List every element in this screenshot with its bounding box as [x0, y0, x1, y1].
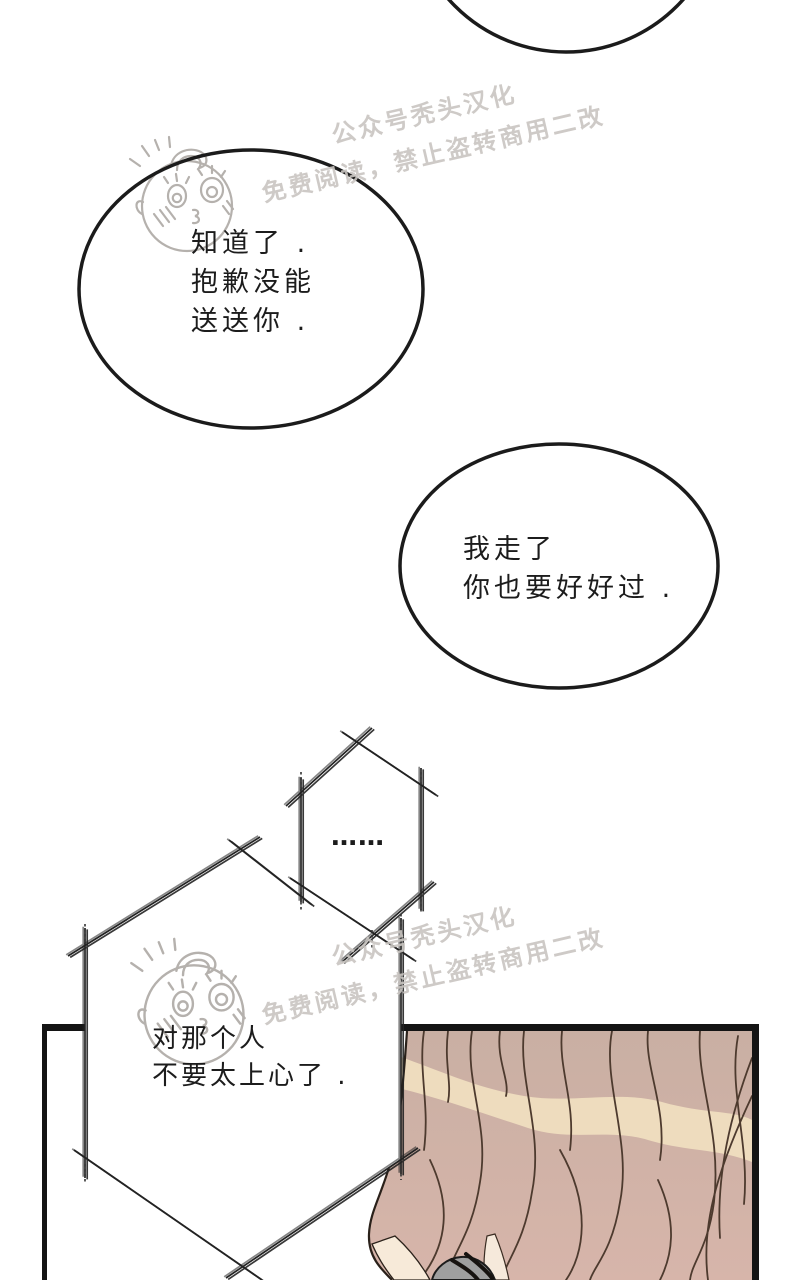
speech-line: 你也要好好过 .: [463, 569, 674, 608]
speech-bubble-1-text: 知道了 .抱歉没能送送你 .: [191, 224, 315, 341]
speech-line: 抱歉没能: [191, 263, 315, 302]
speech-bubble-top-partial: [409, 0, 723, 52]
comic-page: 知道了 .抱歉没能送送你 . 我走了你也要好好过 . …… 对那个人不要太上心了…: [0, 0, 800, 1280]
panel-border-right: [752, 1024, 759, 1280]
speech-bubble-2-text: 我走了你也要好好过 .: [463, 530, 674, 608]
speech-line: 对那个人: [152, 1021, 349, 1058]
thought-small-text: ……: [331, 818, 385, 857]
speech-line: 送送你 .: [191, 302, 315, 341]
character-hair: [369, 1031, 752, 1280]
speech-line: 不要太上心了 .: [152, 1058, 349, 1095]
thought-big-text: 对那个人不要太上心了 .: [152, 1021, 349, 1095]
comic-artwork: [0, 0, 800, 1280]
panel-border-left: [42, 1024, 47, 1280]
speech-line: 我走了: [463, 530, 674, 569]
ellipsis-dots: ……: [331, 822, 385, 852]
speech-line: 知道了 .: [191, 224, 315, 263]
